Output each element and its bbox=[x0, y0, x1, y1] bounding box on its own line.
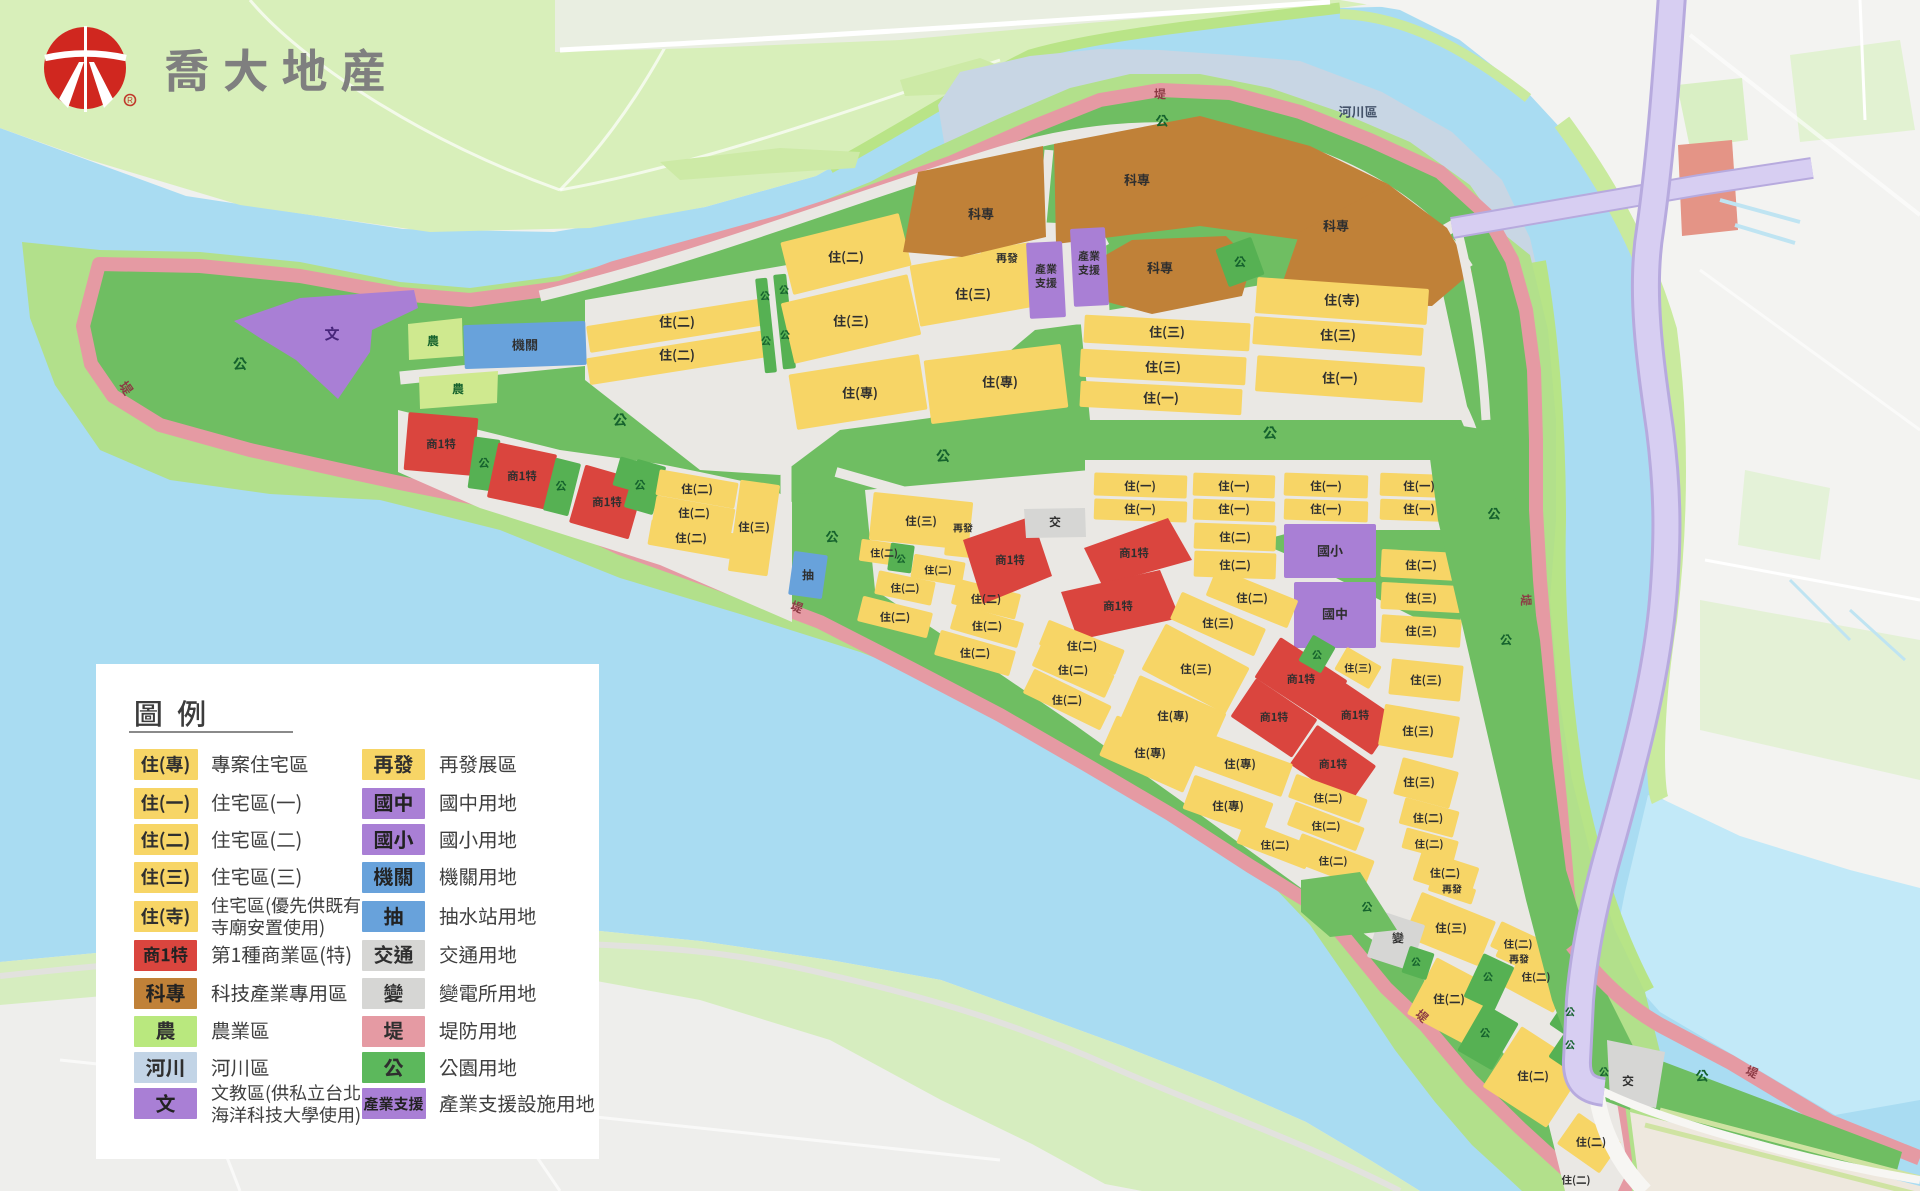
svg-text:R: R bbox=[127, 96, 133, 105]
